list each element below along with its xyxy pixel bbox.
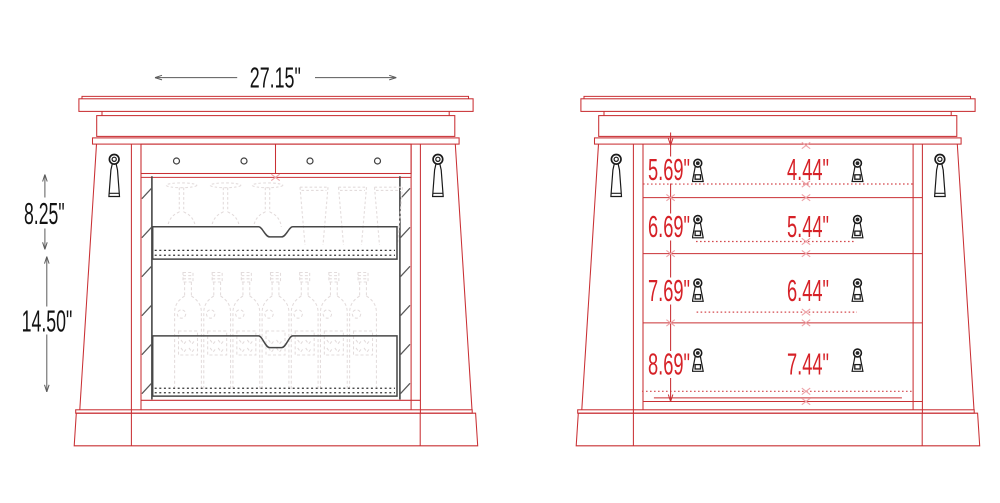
- svg-text:8.25": 8.25": [24, 197, 65, 231]
- svg-text:7.69": 7.69": [648, 273, 690, 308]
- svg-text:5.44": 5.44": [787, 209, 829, 244]
- svg-text:6.69": 6.69": [648, 209, 690, 244]
- svg-text:6.44": 6.44": [787, 273, 829, 308]
- svg-text:5.69": 5.69": [648, 152, 690, 187]
- svg-text:4.44": 4.44": [787, 152, 829, 187]
- svg-text:14.50": 14.50": [22, 304, 73, 338]
- svg-text:7.44": 7.44": [787, 347, 829, 382]
- svg-text:8.69": 8.69": [648, 347, 690, 382]
- svg-text:27.15": 27.15": [250, 63, 301, 95]
